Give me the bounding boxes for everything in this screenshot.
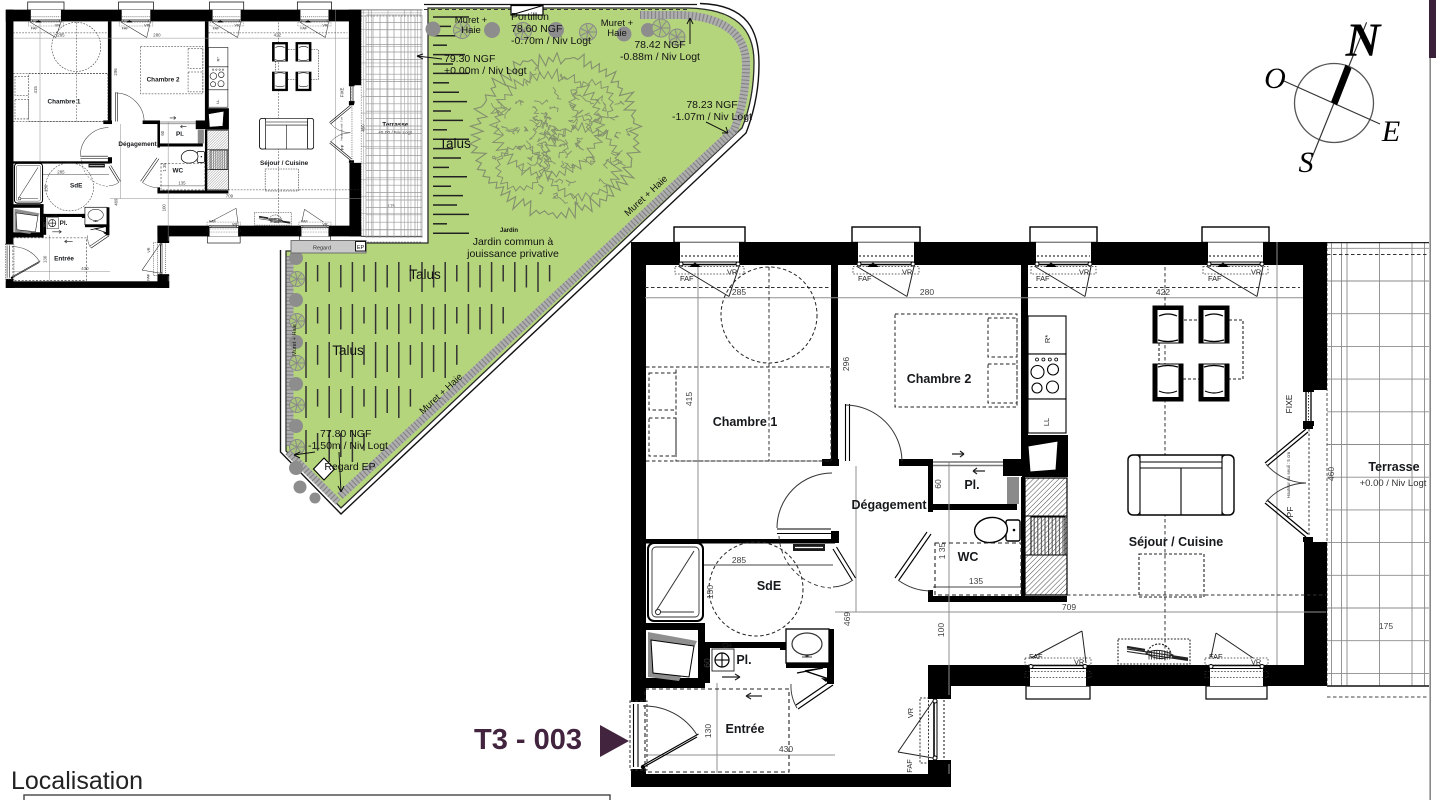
svg-text:Portillon: Portillon	[511, 11, 549, 23]
svg-text:N: N	[1345, 14, 1383, 67]
svg-text:-1.50m / Niv Logt: -1.50m / Niv Logt	[308, 440, 388, 452]
svg-text:Talus: Talus	[409, 267, 441, 282]
svg-text:Muret + Haie: Muret + Haie	[292, 324, 298, 356]
svg-text:Talus: Talus	[439, 136, 471, 151]
svg-text:jouissance privative: jouissance privative	[466, 248, 559, 260]
svg-text:-0.70m / Niv Logt: -0.70m / Niv Logt	[511, 35, 591, 47]
svg-text:-0.88m / Niv Logt: -0.88m / Niv Logt	[620, 51, 700, 63]
svg-text:Regard EP: Regard EP	[324, 461, 375, 473]
svg-text:+0.00m / Niv Logt: +0.00m / Niv Logt	[444, 65, 527, 77]
svg-text:Talus: Talus	[332, 343, 364, 358]
svg-text:EP: EP	[357, 245, 365, 251]
svg-text:T3 - 003: T3 - 003	[474, 724, 582, 756]
svg-text:78.42 NGF: 78.42 NGF	[634, 39, 685, 51]
svg-text:Jardin commun à: Jardin commun à	[473, 236, 554, 248]
svg-text:S: S	[1299, 146, 1314, 179]
svg-text:E: E	[1381, 115, 1400, 148]
svg-text:Haie: Haie	[607, 28, 627, 39]
svg-text:Jardin: Jardin	[500, 228, 518, 234]
svg-text:Haie: Haie	[461, 25, 481, 36]
svg-text:-1.07m / Niv Logt: -1.07m / Niv Logt	[672, 111, 752, 123]
svg-text:79.30 NGF: 79.30 NGF	[444, 53, 495, 65]
svg-text:77.80 NGF: 77.80 NGF	[320, 428, 371, 440]
svg-text:78.60 NGF: 78.60 NGF	[511, 23, 562, 35]
svg-text:Localisation: Localisation	[11, 767, 143, 795]
svg-text:Regard: Regard	[313, 246, 331, 252]
svg-text:78.23 NGF: 78.23 NGF	[686, 99, 737, 111]
svg-text:O: O	[1264, 62, 1286, 95]
